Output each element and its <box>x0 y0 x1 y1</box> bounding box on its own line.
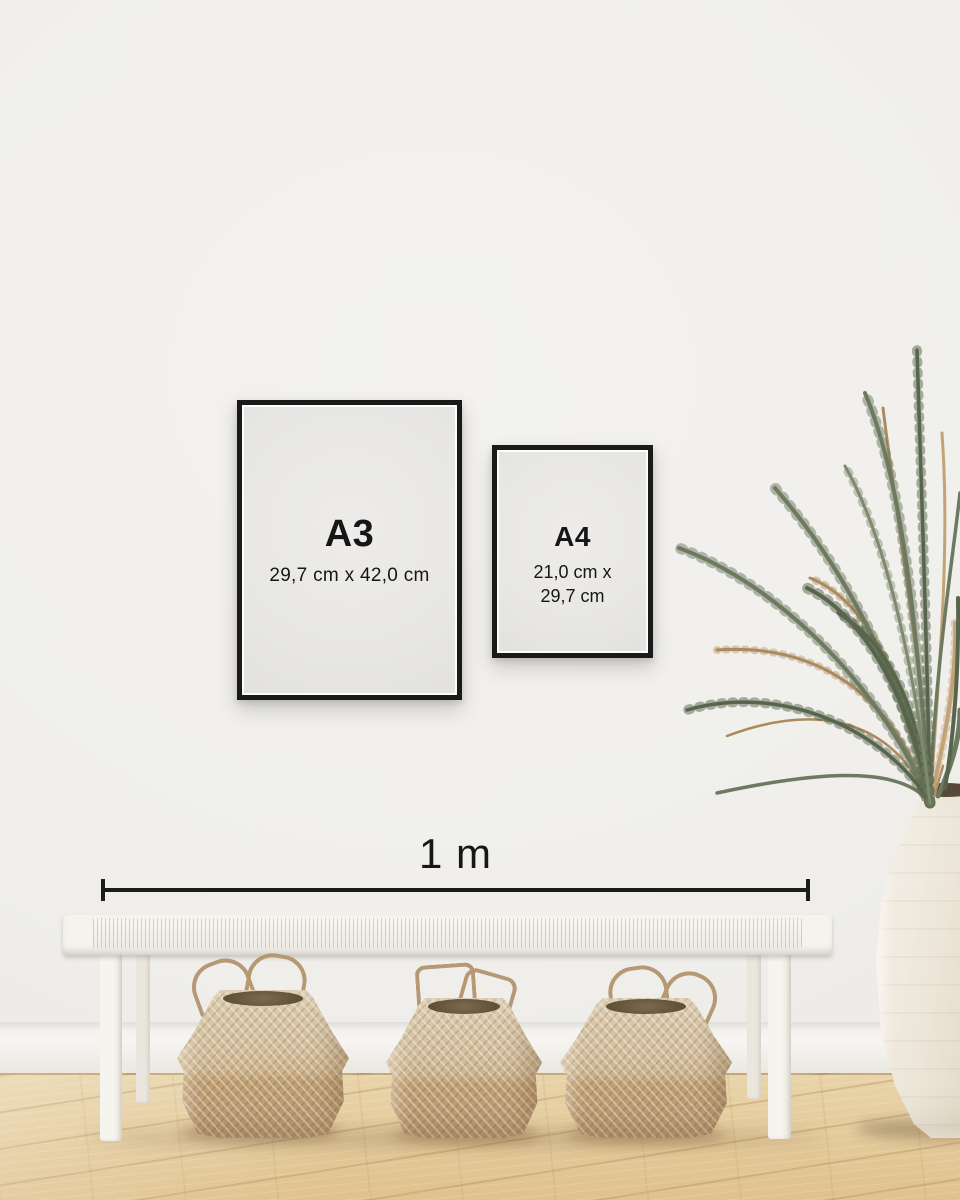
seagrass-basket-1 <box>177 990 349 1138</box>
a3-frame-text: A3 29,7 cm x 42,0 cm <box>269 513 429 587</box>
room-mockup-scene: A3 29,7 cm x 42,0 cm A4 21,0 cm x 29,7 c… <box>0 0 960 1200</box>
bench-leg-front-right <box>768 951 791 1139</box>
basket-body <box>386 998 542 1138</box>
bench-woven-top <box>93 918 802 948</box>
basket-opening <box>428 999 500 1014</box>
a3-poster-frame: A3 29,7 cm x 42,0 cm <box>237 400 462 700</box>
a3-dimensions-text: 29,7 cm x 42,0 cm <box>269 565 429 587</box>
bench-leg-front-left <box>100 951 122 1141</box>
a4-poster-frame: A4 21,0 cm x 29,7 cm <box>492 445 653 658</box>
basket-opening <box>606 999 685 1014</box>
a4-dimensions-line1: 21,0 cm x <box>533 561 611 584</box>
palm-fronds-graphic <box>655 338 960 813</box>
bench-leg-back-left <box>136 951 150 1103</box>
bench-leg-back-right <box>747 951 761 1099</box>
a4-frame-text: A4 21,0 cm x 29,7 cm <box>533 521 611 608</box>
scale-tick-right <box>806 879 810 901</box>
bench-seat <box>63 915 832 955</box>
basket-opening <box>223 991 302 1006</box>
seagrass-basket-2 <box>386 998 542 1138</box>
scale-bar-label: 1 m <box>103 830 808 878</box>
palm-plant-image <box>655 338 960 813</box>
a4-dimensions-text: 21,0 cm x 29,7 cm <box>533 561 611 608</box>
a4-dimensions-line2: 29,7 cm <box>533 585 611 608</box>
scale-bar-line <box>103 888 808 892</box>
a4-size-label: A4 <box>533 521 611 553</box>
scale-tick-left <box>101 879 105 901</box>
a3-size-label: A3 <box>269 513 429 556</box>
scale-bar: 1 m <box>103 830 808 892</box>
seagrass-basket-3 <box>560 998 732 1138</box>
